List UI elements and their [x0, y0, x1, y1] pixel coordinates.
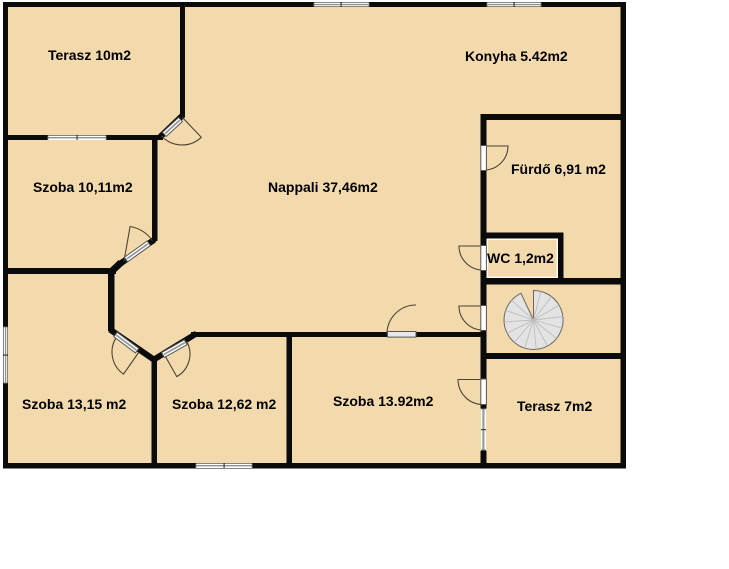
svg-text:Szoba 10,11m2: Szoba 10,11m2: [33, 179, 133, 195]
svg-text:Nappali 37,46m2: Nappali 37,46m2: [268, 179, 378, 195]
svg-text:Szoba 13.92m2: Szoba 13.92m2: [333, 393, 434, 409]
svg-text:WC 1,2m2: WC 1,2m2: [487, 250, 554, 266]
svg-text:Szoba 13,15 m2: Szoba 13,15 m2: [22, 396, 126, 412]
svg-text:Terasz 7m2: Terasz 7m2: [517, 398, 592, 414]
svg-text:Fürdő 6,91 m2: Fürdő 6,91 m2: [511, 161, 606, 177]
svg-text:Terasz 10m2: Terasz 10m2: [48, 47, 131, 63]
svg-text:Konyha 5.42m2: Konyha 5.42m2: [465, 48, 568, 64]
svg-text:Szoba 12,62 m2: Szoba 12,62 m2: [172, 396, 276, 412]
